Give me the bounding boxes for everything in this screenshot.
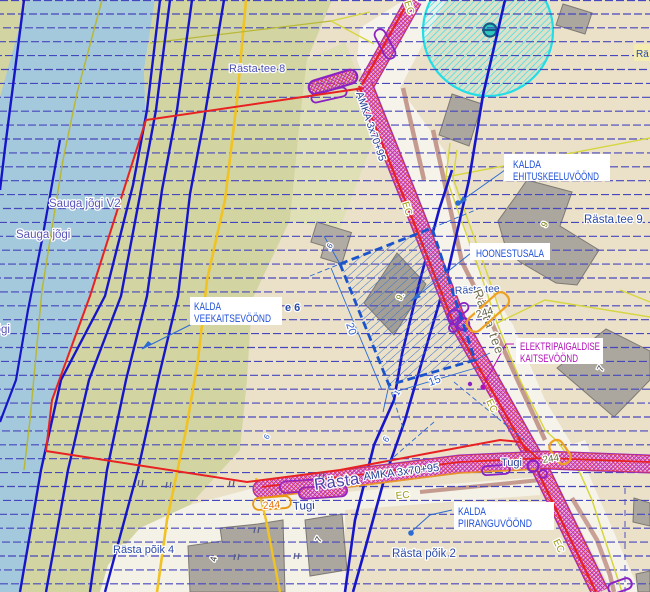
svg-text:KALDA: KALDA xyxy=(458,506,487,518)
svg-text:HOONESTUSALA: HOONESTUSALA xyxy=(476,248,544,260)
svg-text:244: 244 xyxy=(262,499,280,512)
svg-text:Sauga jõgi V2: Sauga jõgi V2 xyxy=(49,198,121,210)
svg-text:KALDA: KALDA xyxy=(194,301,221,313)
svg-text:Rästa põik 4: Rästa põik 4 xyxy=(113,544,174,556)
svg-text:ELEKTRIPAIGALDISE: ELEKTRIPAIGALDISE xyxy=(520,341,600,353)
svg-text:VEEKAITSEVÖÖND: VEEKAITSEVÖÖND xyxy=(194,313,271,325)
svg-text:Tugi: Tugi xyxy=(293,500,316,513)
svg-text:KALDA: KALDA xyxy=(513,159,542,171)
svg-text:Rästa põik 2: Rästa põik 2 xyxy=(392,548,456,560)
svg-text:Rä: Rä xyxy=(636,49,649,60)
svg-text:KAITSEVÖÖND: KAITSEVÖÖND xyxy=(520,353,578,365)
svg-text:Sauga jõgi: Sauga jõgi xyxy=(16,229,70,241)
svg-text:jõgi: jõgi xyxy=(0,324,10,336)
svg-text:Rästa tee 9: Rästa tee 9 xyxy=(584,214,643,226)
svg-text:Tugi: Tugi xyxy=(501,457,522,469)
svg-text:EHITUSKEELUVÖÖND: EHITUSKEELUVÖÖND xyxy=(513,171,599,183)
svg-text:EC: EC xyxy=(395,490,410,502)
svg-text:PIIRANGUVÖÖND: PIIRANGUVÖÖND xyxy=(458,518,532,530)
svg-text:Rästa tee 8: Rästa tee 8 xyxy=(229,63,285,75)
svg-text:e 6: e 6 xyxy=(285,302,300,314)
